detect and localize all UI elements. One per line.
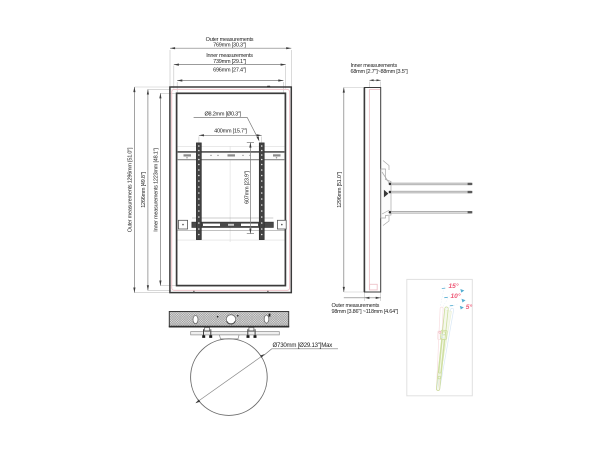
svg-text:Ø8.2mm [Ø0.3"]: Ø8.2mm [Ø0.3"] (205, 112, 242, 118)
svg-text:696mm [27.4"]: 696mm [27.4"] (213, 68, 246, 74)
svg-text:Inner measurements 1223mm [48.: Inner measurements 1223mm [48.1"] (154, 148, 160, 232)
svg-text:739mm [29.1"]: 739mm [29.1"] (213, 59, 246, 65)
svg-text:Outer measurements 1296mm [51.: Outer measurements 1296mm [51.0"] (128, 147, 134, 232)
svg-text:98mm [3.86"] ~118mm [4.64"]: 98mm [3.86"] ~118mm [4.64"] (332, 309, 399, 315)
svg-text:5°: 5° (466, 303, 473, 311)
svg-text:607mm [23.9"]: 607mm [23.9"] (245, 170, 251, 203)
svg-text:400mm [15.7"]: 400mm [15.7"] (214, 128, 247, 134)
svg-text:Ø730mm [Ø29.13"]Max: Ø730mm [Ø29.13"]Max (273, 342, 333, 349)
svg-text:1296mm [51.0"]: 1296mm [51.0"] (337, 172, 343, 208)
svg-text:1266mm [49.8"]: 1266mm [49.8"] (141, 172, 147, 208)
svg-text:68mm [2.7"]~88mm [3.5"]: 68mm [2.7"]~88mm [3.5"] (351, 69, 409, 75)
svg-text:15°: 15° (449, 282, 459, 290)
svg-text:10°: 10° (451, 292, 461, 300)
svg-text:769mm [30.3"]: 769mm [30.3"] (213, 43, 246, 49)
